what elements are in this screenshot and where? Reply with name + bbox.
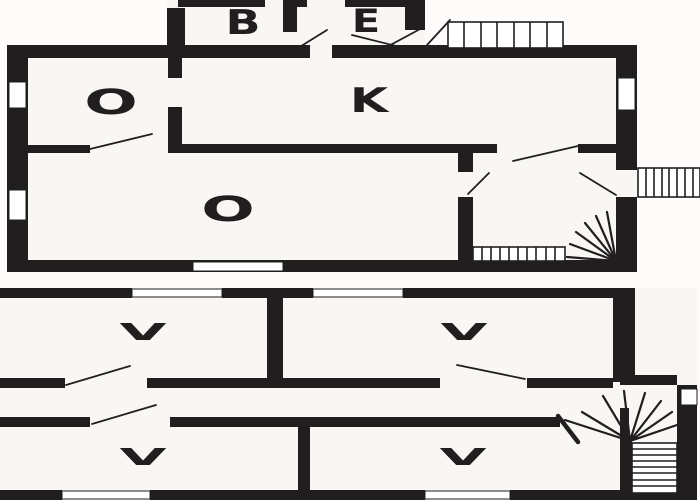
lower-block-interior <box>0 288 697 500</box>
lower-top-wall-3 <box>403 288 635 298</box>
lower-bottom-wall-2 <box>150 490 425 500</box>
band1-bottom-wall-3 <box>527 378 613 388</box>
vestibule-right-wall <box>405 0 425 30</box>
band1-bottom-wall-2 <box>147 378 440 388</box>
room-label-v3: V <box>119 443 167 470</box>
wall-horizontal-middle <box>168 144 497 153</box>
lower-top-wall-1 <box>0 288 132 298</box>
window-lower-right <box>681 389 697 405</box>
wall-entry-stub-bottom <box>458 197 473 260</box>
room-label-v2: V <box>440 318 488 345</box>
v2-right-wall <box>613 288 635 382</box>
wall-entry-stub-top <box>458 153 473 172</box>
lower-top-wall-2 <box>222 288 313 298</box>
floor-plan-page: B E O K O V V V V <box>0 0 700 500</box>
wall-horizontal-left <box>28 145 90 153</box>
stair-right-exterior <box>638 168 700 197</box>
window-right-upper <box>618 78 635 110</box>
window-lower-top-1 <box>132 289 222 297</box>
band1-bottom-wall-1 <box>0 378 65 388</box>
room-label-k: K <box>350 81 391 120</box>
wall-v1-v2-divider <box>267 298 283 388</box>
wall-horizontal-right <box>578 144 616 153</box>
band2-top-wall-2 <box>170 417 560 427</box>
room-label-v1: V <box>119 318 167 345</box>
stairwell-left-wall <box>620 437 632 500</box>
upper-block-interior <box>7 45 637 272</box>
upper-top-wall-left <box>7 45 310 58</box>
wall-b-e-divider <box>283 0 297 32</box>
room-label-o-lower: O <box>201 189 255 229</box>
band2-top-wall-1 <box>0 417 90 427</box>
stairwell-top-wall <box>620 375 677 385</box>
window-lower-top-2 <box>313 289 403 297</box>
wall-o-k-upper <box>168 58 182 78</box>
room-label-o-upper: O <box>84 82 138 122</box>
window-left-1 <box>9 82 26 108</box>
floor-plan-canvas: B E O K O V V V V <box>0 0 700 500</box>
room-label-e: E <box>352 3 380 40</box>
lower-bottom-wall-1 <box>0 490 62 500</box>
room-label-v4: V <box>439 443 487 470</box>
room-label-b: B <box>226 3 261 43</box>
upper-left-wall <box>7 45 28 272</box>
stair-top-right-exterior <box>448 22 563 48</box>
window-upper-bottom <box>193 262 283 271</box>
window-lower-bottom-2 <box>425 491 510 499</box>
window-left-2 <box>9 190 26 220</box>
window-lower-bottom-1 <box>62 491 150 499</box>
wall-v3-v4-divider <box>298 427 310 500</box>
